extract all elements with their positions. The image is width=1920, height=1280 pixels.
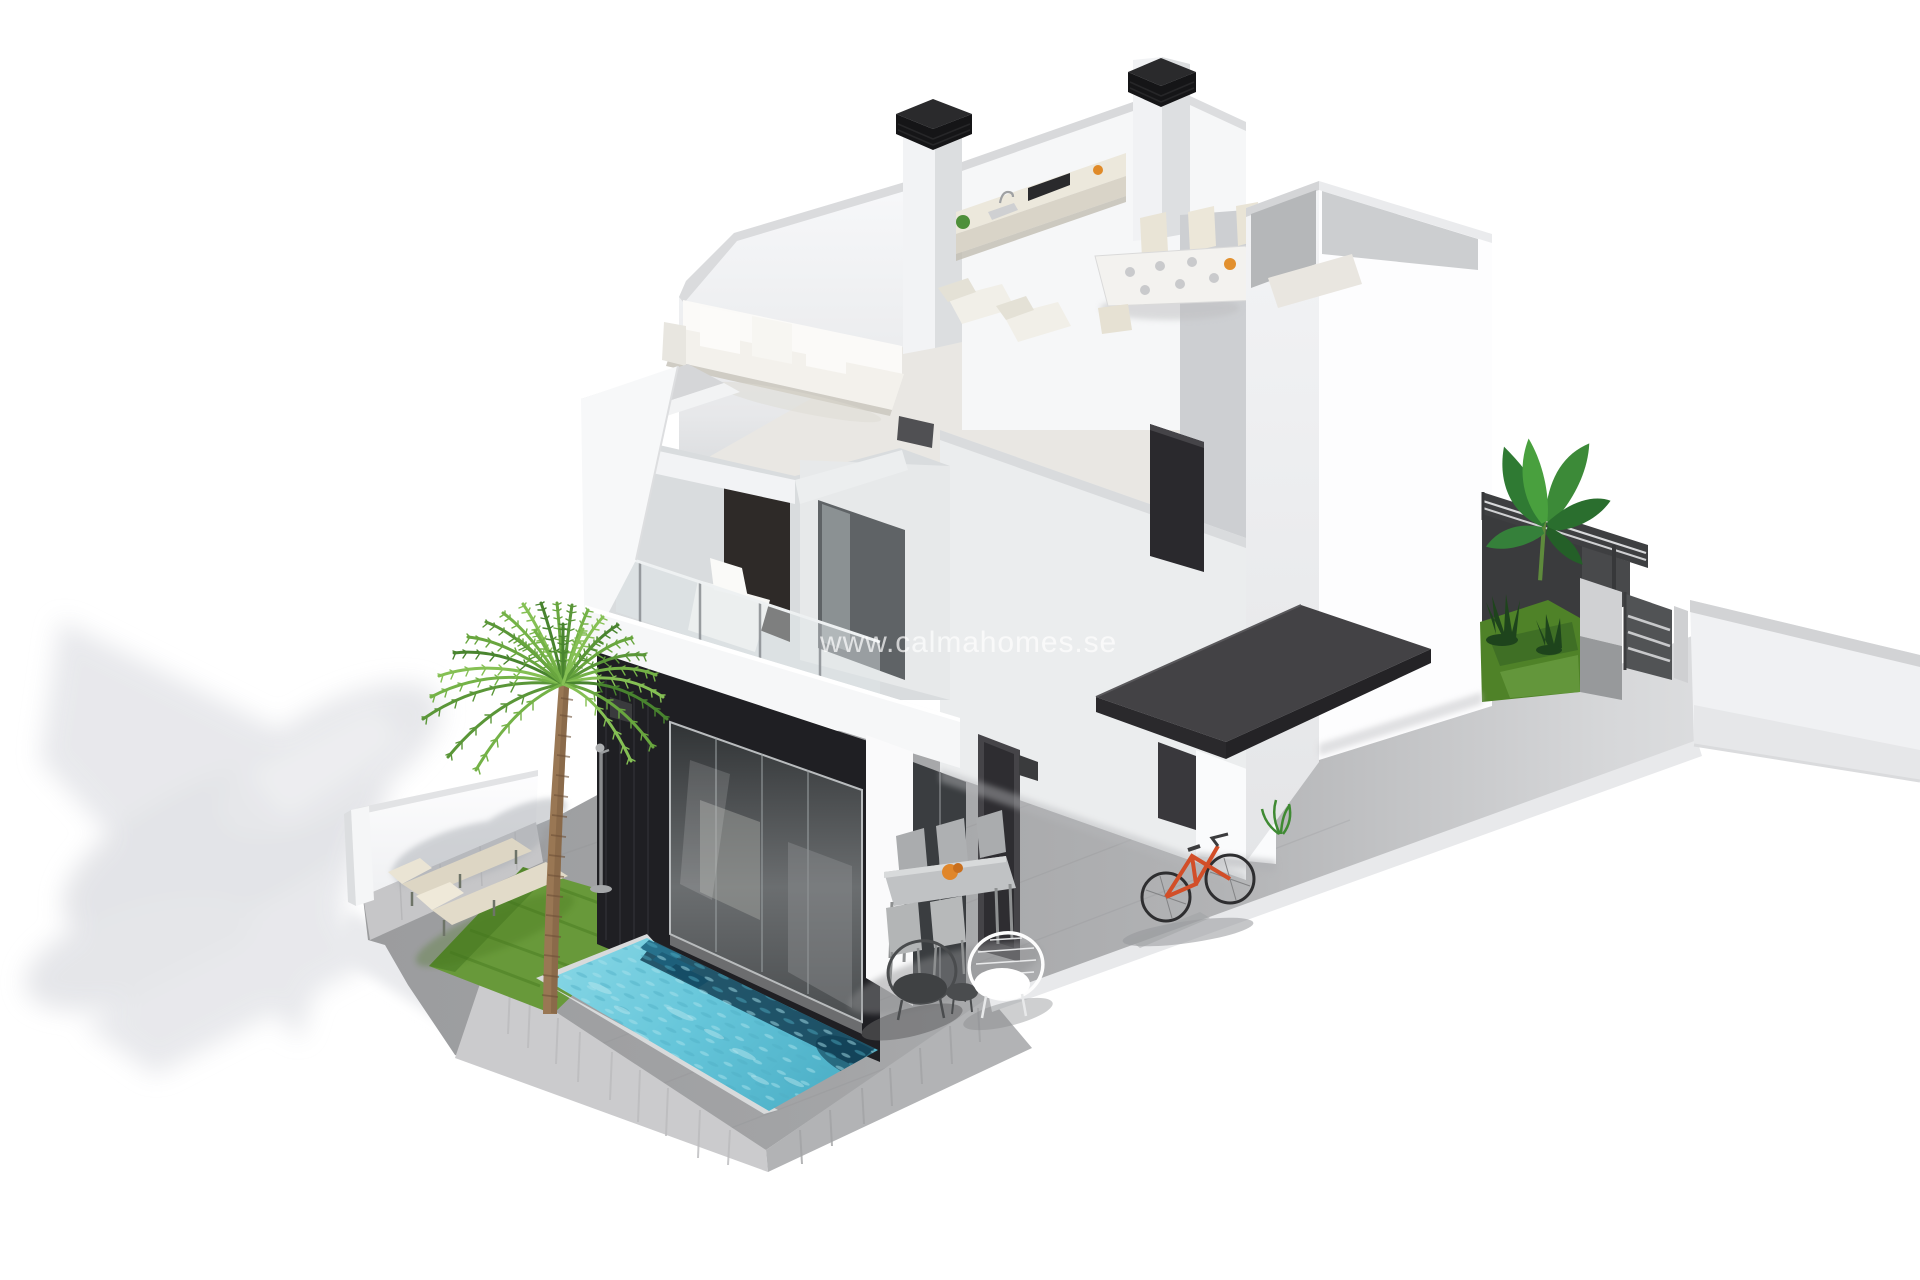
svg-text:www.calmahomes.se: www.calmahomes.se [819,626,1117,659]
